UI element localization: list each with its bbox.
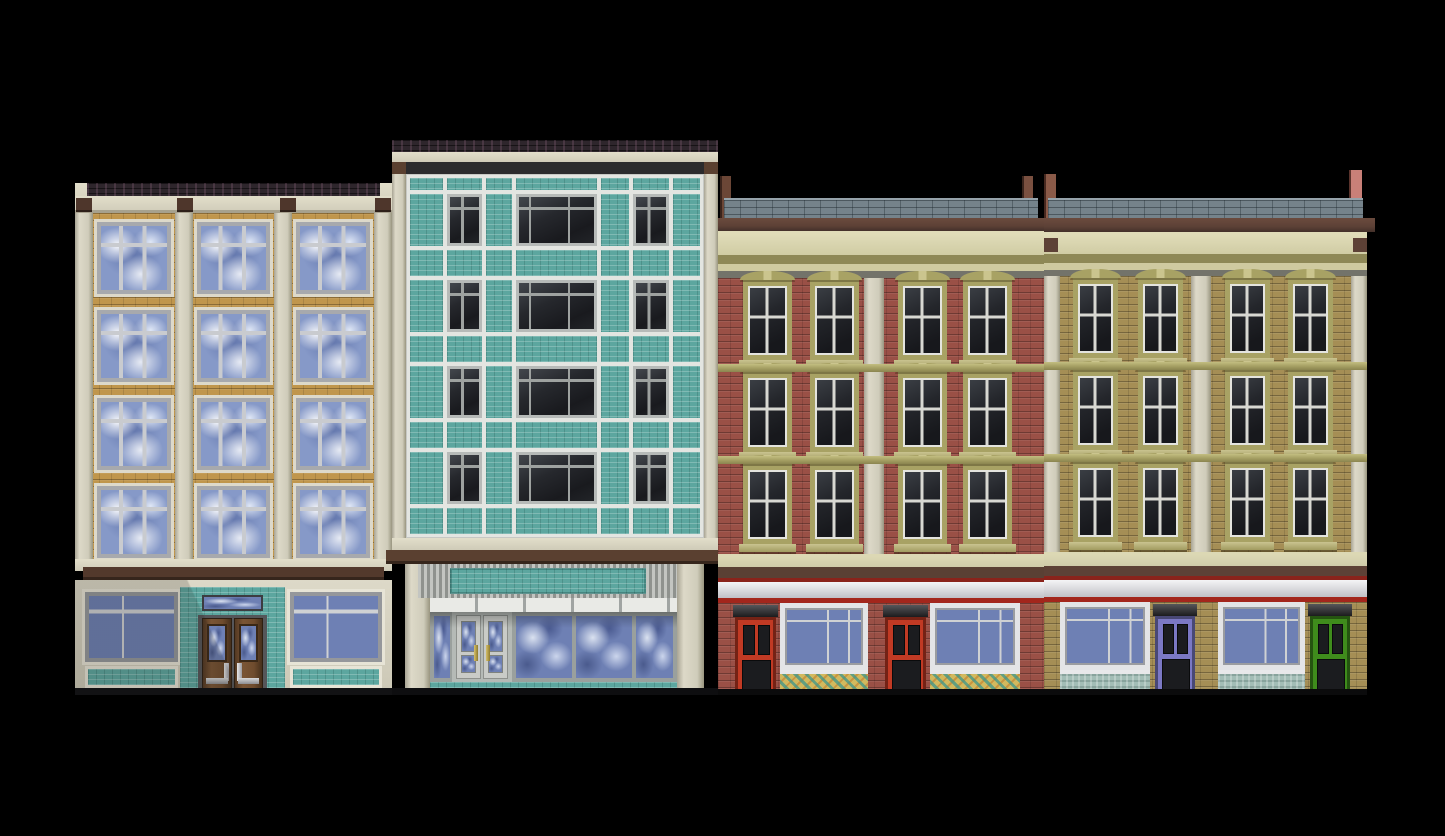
- spandrel-panel: [601, 422, 629, 448]
- roof-fascia-dark: [392, 162, 718, 174]
- spandrel-panel: [486, 508, 512, 534]
- apartment-window: [197, 486, 271, 558]
- storefront-base: [392, 688, 718, 695]
- office-window: [633, 194, 669, 246]
- cornice-beam: [1044, 218, 1375, 232]
- storefront: [1044, 602, 1367, 695]
- door-pane: [908, 625, 920, 655]
- spandrel-panel: [410, 422, 443, 448]
- awning-shadow: [430, 612, 677, 628]
- cornice-band: [1044, 232, 1367, 254]
- spandrel-panel: [486, 280, 512, 332]
- storefront-glazing: [430, 612, 677, 682]
- floor: [742, 278, 864, 370]
- apartment-window: [197, 398, 271, 470]
- parapet-cap: [392, 152, 718, 162]
- sash-window: [1138, 462, 1183, 542]
- office-window: [633, 452, 669, 504]
- window-bay-left: [742, 278, 864, 554]
- brass-handle: [474, 645, 478, 661]
- floor: [1070, 460, 1191, 552]
- sash-window: [898, 464, 947, 544]
- sash-window: [1073, 462, 1118, 542]
- building-red-brick-victorian: [718, 176, 1044, 695]
- spandrel-panel: [601, 280, 629, 332]
- spandrel-panel: [633, 250, 669, 276]
- spandrel-panel: [601, 452, 629, 504]
- spandrel-panel: [486, 250, 512, 276]
- spandrel-panel: [673, 194, 700, 246]
- storefront: [718, 603, 1044, 695]
- display-window: [1060, 602, 1150, 670]
- spandrel-panel: [447, 178, 482, 190]
- sash-window: [1225, 370, 1270, 450]
- corner-bracket-left: [1044, 238, 1058, 252]
- spandrel-panel: [601, 194, 629, 246]
- office-window-wide: [516, 452, 597, 504]
- spandrel-panel: [601, 250, 629, 276]
- floor: [1070, 368, 1191, 460]
- spandrel-panel: [486, 194, 512, 246]
- stone-parapet-cap: [1048, 198, 1363, 218]
- building-olive-brick-victorian: [1044, 170, 1367, 695]
- window-bay-right: [898, 278, 1020, 554]
- storefront-base: [75, 688, 392, 695]
- spandrel-panel: [516, 508, 597, 534]
- window-bay-left: [1070, 276, 1191, 552]
- signboard-beam: [718, 567, 1044, 578]
- sash-window: [743, 464, 792, 544]
- spandrel-panel: [516, 422, 597, 448]
- apartment-window: [97, 310, 171, 382]
- office-window-wide: [516, 280, 597, 332]
- cornice-bracket: [280, 198, 296, 212]
- pilaster: [374, 213, 392, 559]
- spandrel-panel: [410, 336, 443, 362]
- spandrel-panel: [673, 508, 700, 534]
- shop-door-purple: [1155, 616, 1195, 695]
- floor: [1224, 460, 1345, 552]
- pilaster-left: [392, 174, 406, 544]
- sash-window: [810, 464, 859, 544]
- door-pane: [758, 625, 770, 655]
- stone-parapet-cap: [724, 198, 1038, 218]
- floor-band: [1044, 362, 1367, 370]
- floor: [742, 370, 864, 462]
- sash-window: [1225, 462, 1270, 542]
- floor-band: [718, 364, 1044, 372]
- door-panel: [1317, 659, 1345, 693]
- door-pane: [1163, 624, 1174, 654]
- spandrel-panel: [633, 508, 669, 534]
- sash-window: [1073, 278, 1118, 358]
- canopy-beam: [386, 550, 724, 564]
- transom-band: [430, 598, 677, 612]
- edge-pilaster-right: [1351, 276, 1367, 552]
- window-bay-right: [1224, 276, 1345, 552]
- roof-parapet-brick: [87, 183, 380, 196]
- apartment-window: [97, 398, 171, 470]
- floor: [1224, 368, 1345, 460]
- spandrel-panel: [516, 250, 597, 276]
- apartment-window: [296, 486, 370, 558]
- shop-door-green: [1310, 616, 1350, 695]
- spandrel-panel: [447, 422, 482, 448]
- door-header: [1153, 604, 1197, 616]
- door-header: [733, 605, 778, 617]
- office-window: [447, 366, 482, 418]
- storefront-shadow: [75, 580, 392, 695]
- storefront: [75, 580, 392, 695]
- shop-door-red: [885, 617, 926, 695]
- spandrel-panel: [633, 336, 669, 362]
- apartment-window: [97, 222, 171, 294]
- storefront-base: [1044, 689, 1367, 695]
- spandrel-panel: [601, 508, 629, 534]
- spandrel-panel: [516, 336, 597, 362]
- spandrel-panel: [486, 422, 512, 448]
- spandrel-panel: [601, 336, 629, 362]
- spandrel-panel: [673, 452, 700, 504]
- street-facade-scene: [0, 0, 1445, 836]
- frieze-band: [1044, 254, 1367, 263]
- sash-window: [1288, 462, 1333, 542]
- cornice-band: [75, 196, 392, 213]
- apartment-window: [97, 486, 171, 558]
- window-column: [93, 213, 175, 559]
- fascia-band: [718, 582, 1044, 598]
- spandrel-panel: [410, 178, 443, 190]
- office-window: [447, 280, 482, 332]
- sash-window: [963, 464, 1012, 544]
- office-window-wide: [516, 366, 597, 418]
- sash-window: [963, 372, 1012, 452]
- fascia-band: [1044, 580, 1367, 597]
- sash-window: [1138, 278, 1183, 358]
- upper-facade: [1044, 276, 1367, 552]
- spandrel-panel: [410, 250, 443, 276]
- signboard-band: [83, 567, 384, 580]
- center-pilaster: [864, 278, 884, 554]
- upper-facade: [75, 213, 392, 559]
- display-window: [1218, 602, 1305, 670]
- storefront-awning: [418, 564, 677, 598]
- office-window-wide: [516, 194, 597, 246]
- door-pane: [1318, 624, 1329, 654]
- spandrel-panel: [673, 366, 700, 418]
- spandrel-panel: [410, 366, 443, 418]
- spandrel-panel: [633, 178, 669, 190]
- spandrel-panel: [486, 178, 512, 190]
- sash-window: [743, 280, 792, 360]
- cornice-bracket: [177, 198, 193, 212]
- spandrel-panel: [486, 336, 512, 362]
- spandrel-panel: [410, 508, 443, 534]
- apartment-window: [296, 310, 370, 382]
- sash-window: [810, 372, 859, 452]
- storefront-cornice: [1044, 552, 1367, 566]
- office-window: [447, 194, 482, 246]
- spandrel-panel: [410, 280, 443, 332]
- spandrel-panel: [633, 422, 669, 448]
- door-pane: [1177, 624, 1188, 654]
- sash-window: [743, 372, 792, 452]
- storefront-cornice: [718, 554, 1044, 567]
- floor-band: [1044, 454, 1367, 462]
- center-pilaster: [1191, 276, 1211, 552]
- sash-window: [1288, 370, 1333, 450]
- spandrel-panel: [673, 336, 700, 362]
- apartment-window: [296, 398, 370, 470]
- spandrel-panel: [673, 178, 700, 190]
- spandrel-panel: [486, 452, 512, 504]
- office-window: [447, 452, 482, 504]
- sash-window: [898, 280, 947, 360]
- floor: [1070, 276, 1191, 368]
- shop-door-red: [735, 617, 776, 695]
- signboard-beam: [1044, 566, 1367, 576]
- frieze-band: [718, 255, 1044, 264]
- pilaster-right: [704, 174, 718, 544]
- apartment-window: [197, 310, 271, 382]
- corner-bracket-right: [1353, 238, 1367, 252]
- floor: [898, 278, 1020, 370]
- spandrel-panel: [601, 366, 629, 418]
- cornice-bracket: [76, 198, 92, 212]
- door-header: [1308, 604, 1352, 616]
- building-tan-brick-walkup: [75, 183, 392, 695]
- door-panel: [1162, 659, 1190, 693]
- curtain-wall-grid: [406, 174, 704, 538]
- office-window: [633, 280, 669, 332]
- door-header: [883, 605, 928, 617]
- floor: [742, 462, 864, 554]
- brass-handle: [486, 645, 490, 661]
- office-window: [633, 366, 669, 418]
- spandrel-panel: [447, 336, 482, 362]
- storefront-pier-right: [677, 564, 704, 688]
- door-pane: [743, 625, 755, 655]
- apartment-window: [296, 222, 370, 294]
- sash-window: [963, 280, 1012, 360]
- sash-window: [1225, 278, 1270, 358]
- spandrel-panel: [447, 250, 482, 276]
- storefront-base: [718, 689, 1044, 695]
- spandrel-panel: [673, 280, 700, 332]
- door-pane: [1332, 624, 1343, 654]
- spandrel-panel: [601, 178, 629, 190]
- door-pane: [893, 625, 905, 655]
- spandrel-panel: [410, 452, 443, 504]
- sash-window: [1073, 370, 1118, 450]
- storefront-cornice: [392, 538, 718, 550]
- building-teal-panel: [392, 140, 718, 695]
- pilaster: [175, 213, 193, 559]
- door-glass-lower: [488, 655, 503, 673]
- apartment-window: [197, 222, 271, 294]
- cornice-beam: [718, 218, 1044, 231]
- spandrel-panel: [486, 366, 512, 418]
- floor: [898, 462, 1020, 554]
- display-window: [930, 603, 1020, 670]
- floor: [898, 370, 1020, 462]
- roof-parapet-brick: [392, 140, 718, 152]
- sash-window: [898, 372, 947, 452]
- pilaster: [274, 213, 292, 559]
- spandrel-panel: [410, 194, 443, 246]
- sash-window: [810, 280, 859, 360]
- display-window: [780, 603, 868, 670]
- cornice-band: [718, 231, 1044, 255]
- window-column: [193, 213, 275, 559]
- spandrel-panel: [447, 508, 482, 534]
- floor: [1224, 276, 1345, 368]
- window-column: [292, 213, 374, 559]
- upper-facade: [718, 278, 1044, 554]
- frieze-band-light: [718, 264, 1044, 271]
- sash-window: [1288, 278, 1333, 358]
- awning-sign-panel: [450, 568, 646, 594]
- spandrel-panel: [516, 178, 597, 190]
- sash-window: [1138, 370, 1183, 450]
- pilaster: [75, 213, 93, 559]
- edge-pilaster-left: [1044, 276, 1060, 552]
- cornice-bracket: [375, 198, 391, 212]
- floor-band: [718, 456, 1044, 464]
- spandrel-panel: [673, 422, 700, 448]
- spandrel-panel: [673, 250, 700, 276]
